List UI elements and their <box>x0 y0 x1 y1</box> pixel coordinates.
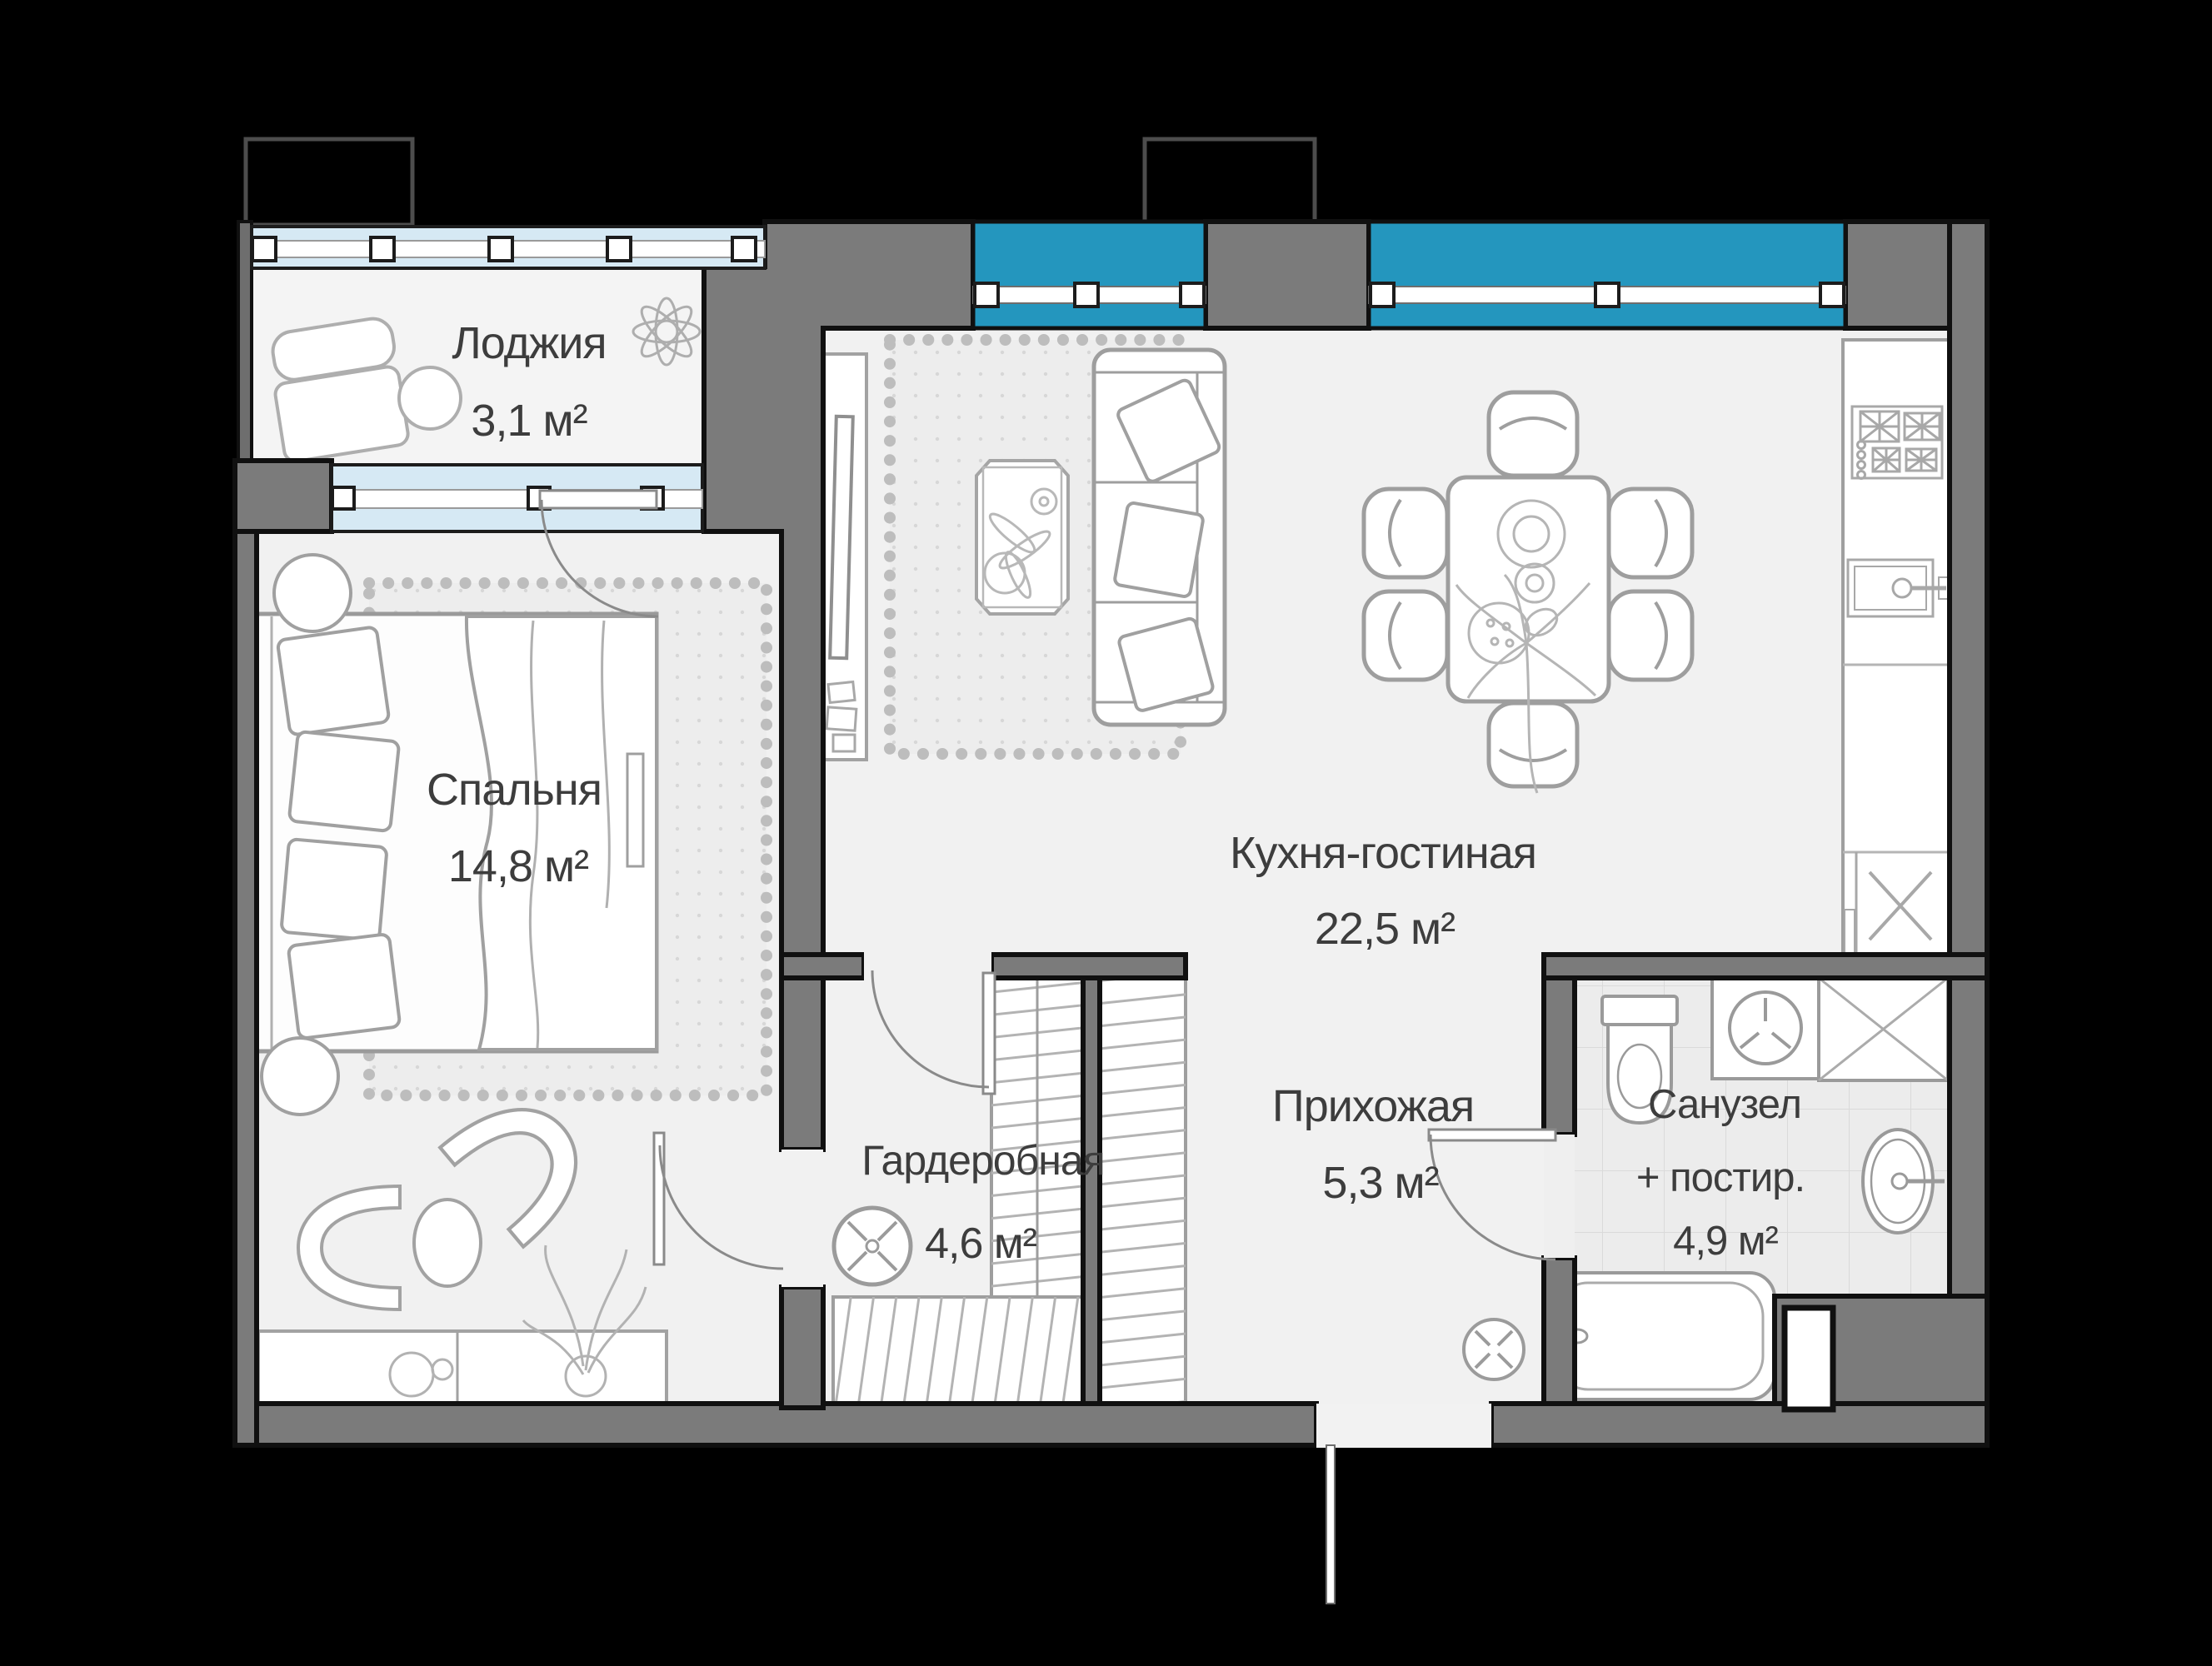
room-label-bedroom: Спальня <box>427 765 602 815</box>
floor-plan-svg: Лоджия 3,1 м² Спальня 14,8 м² Кухня-гост… <box>0 0 2212 1666</box>
wall-bottom <box>235 1404 1316 1445</box>
room-label-kitchen: Кухня-гостиная <box>1230 828 1536 878</box>
floor-plan-canvas: Лоджия 3,1 м² Спальня 14,8 м² Кухня-гост… <box>0 0 2212 1666</box>
door-opening <box>1544 1135 1575 1258</box>
kitchen-counter <box>1843 340 1950 958</box>
door-opening <box>781 1150 823 1287</box>
entry-door-leaf <box>1326 1445 1335 1604</box>
dining-chair-icon <box>1364 489 1447 577</box>
wall <box>1544 1258 1575 1404</box>
door-opening <box>864 952 991 980</box>
mirror-icon <box>627 754 643 866</box>
hallway-wardrobe-hatch <box>1100 978 1186 1404</box>
sofa-icon <box>1094 350 1225 725</box>
dining-chair-icon <box>1609 489 1692 577</box>
loggia-wall <box>238 222 252 465</box>
room-label-wardrobe: Гардеробная <box>861 1137 1104 1184</box>
room-area-bedroom: 14,8 м² <box>448 841 588 891</box>
duct-icon <box>246 139 412 225</box>
room-area-bathroom: 4,9 м² <box>1673 1219 1778 1264</box>
dining-chair-icon <box>1609 591 1692 680</box>
wall-partition <box>781 1287 823 1408</box>
duct-icon <box>1145 139 1315 225</box>
room-area-hallway: 5,3 м² <box>1322 1158 1438 1208</box>
room-label-bathroom-2: + постир. <box>1636 1155 1805 1200</box>
room-area-wardrobe: 4,6 м² <box>925 1220 1036 1268</box>
bathtub-icon <box>1543 1273 1775 1399</box>
dining-chair-icon <box>1364 591 1447 680</box>
wall <box>991 955 1186 978</box>
room-area-loggia: 3,1 м² <box>471 396 587 446</box>
window-panel <box>973 222 1206 328</box>
wall <box>1544 955 1987 978</box>
room-label-hallway: Прихожая <box>1272 1081 1474 1131</box>
loggia-window <box>252 227 765 268</box>
room-label-bathroom: Санузел <box>1648 1082 1801 1127</box>
vent-fan-icon <box>834 1208 911 1284</box>
wall-bottom <box>1491 1404 1987 1445</box>
nightstand-icon <box>262 1038 338 1115</box>
wardrobe-door-leaf <box>983 973 995 1094</box>
shaft-niche <box>1785 1308 1833 1409</box>
wall-divider <box>1083 978 1100 1404</box>
wall-pillar <box>1206 222 1369 328</box>
wall <box>1544 978 1575 1135</box>
balcony-door-leaf <box>540 491 657 508</box>
room-area-kitchen: 22,5 м² <box>1315 904 1455 954</box>
wall-left <box>235 531 257 1445</box>
wardrobe-shelf-hatch <box>833 1297 1083 1404</box>
washing-machine-icon <box>1712 978 1819 1079</box>
wall <box>235 461 332 531</box>
wall-right <box>1950 222 1987 1304</box>
side-table-icon <box>414 1200 481 1286</box>
wall <box>781 955 864 978</box>
coffee-table-icon <box>976 461 1068 614</box>
vent-fan-icon <box>1464 1319 1524 1379</box>
duct-icons <box>246 139 1315 225</box>
entry-threshold <box>1316 1404 1491 1448</box>
nightstand-icon <box>274 555 351 631</box>
window-panel <box>1369 222 1845 328</box>
shower-icon <box>1819 978 1948 1080</box>
round-table-icon <box>399 367 461 429</box>
lounge-chair-icon <box>266 316 409 463</box>
dining-chair-icon <box>1489 392 1577 476</box>
wall-partition <box>781 956 823 1150</box>
room-label-loggia: Лоджия <box>452 318 606 368</box>
